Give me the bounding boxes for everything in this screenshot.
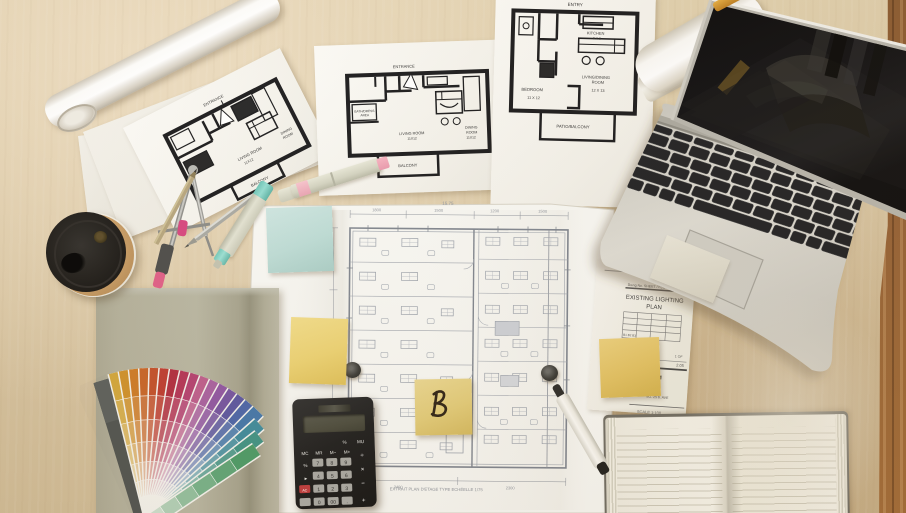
svg-text:MU: MU bbox=[357, 439, 364, 444]
svg-text:11 X 12: 11 X 12 bbox=[527, 96, 540, 100]
svg-text:LIVING ROOM: LIVING ROOM bbox=[399, 131, 424, 136]
svg-text:−: − bbox=[361, 481, 365, 487]
svg-text:DINING: DINING bbox=[465, 125, 478, 129]
svg-text:EXTRAIT PLAN D'ETAGE TYPE ECH: EXTRAIT PLAN D'ETAGE TYPE ECHÉELLE 1/75 bbox=[390, 486, 484, 492]
svg-text:M−: M− bbox=[330, 450, 337, 455]
svg-text:M+: M+ bbox=[344, 449, 351, 454]
svg-text:÷: ÷ bbox=[360, 453, 364, 459]
svg-text:MR: MR bbox=[315, 450, 323, 455]
svg-text:9: 9 bbox=[344, 460, 347, 466]
svg-text:00: 00 bbox=[330, 499, 336, 505]
svg-text:BALCONY: BALCONY bbox=[398, 162, 418, 168]
svg-text:11X12: 11X12 bbox=[466, 135, 476, 139]
svg-text:2300: 2300 bbox=[506, 485, 516, 490]
svg-text:15.75: 15.75 bbox=[442, 201, 454, 206]
svg-text:11X12: 11X12 bbox=[407, 136, 417, 140]
svg-text:7: 7 bbox=[316, 461, 319, 467]
svg-text:AREA: AREA bbox=[360, 113, 370, 117]
svg-text:1800: 1800 bbox=[372, 207, 382, 212]
svg-text:%: % bbox=[303, 463, 307, 468]
svg-text:8: 8 bbox=[330, 461, 333, 467]
svg-text:►: ► bbox=[304, 476, 309, 481]
svg-text:0: 0 bbox=[318, 500, 321, 506]
svg-text:BEDROOM: BEDROOM bbox=[521, 87, 543, 93]
svg-text:ROOM: ROOM bbox=[466, 130, 477, 134]
svg-text:+: + bbox=[362, 498, 366, 504]
svg-text:×: × bbox=[361, 467, 365, 473]
svg-text:.: . bbox=[346, 499, 348, 505]
svg-text:4: 4 bbox=[317, 474, 320, 480]
svg-text:1500: 1500 bbox=[434, 208, 444, 213]
svg-text:AC: AC bbox=[302, 488, 308, 492]
svg-text:MC: MC bbox=[301, 451, 309, 456]
svg-text:3: 3 bbox=[345, 486, 348, 492]
svg-text:5: 5 bbox=[331, 474, 334, 480]
svg-text:2: 2 bbox=[331, 487, 334, 493]
svg-text:ENTRANCE: ENTRANCE bbox=[393, 63, 415, 69]
svg-text:%: % bbox=[343, 440, 347, 445]
svg-text:1: 1 bbox=[317, 487, 320, 493]
svg-text:1500: 1500 bbox=[538, 209, 548, 214]
svg-text:1200: 1200 bbox=[490, 208, 500, 213]
svg-text:6: 6 bbox=[345, 473, 348, 479]
